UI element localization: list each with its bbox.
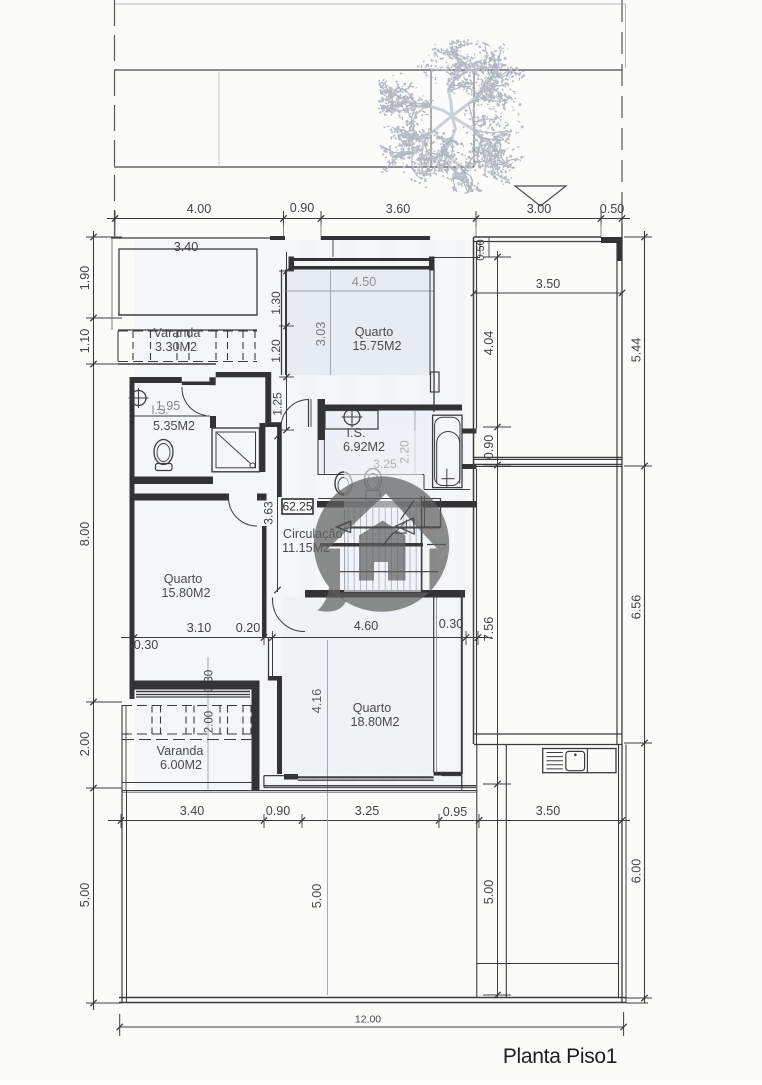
svg-text:Quarto: Quarto: [353, 701, 392, 715]
svg-text:0.20: 0.20: [236, 621, 261, 635]
svg-text:Quarto: Quarto: [164, 572, 203, 586]
svg-text:2.00: 2.00: [204, 711, 216, 733]
svg-text:12.00: 12.00: [355, 1014, 381, 1026]
svg-text:5.35M2: 5.35M2: [153, 419, 195, 433]
svg-text:5.00: 5.00: [310, 884, 324, 909]
svg-text:1.90: 1.90: [78, 266, 92, 291]
svg-text:15.75M2: 15.75M2: [352, 339, 401, 353]
svg-text:3.63: 3.63: [262, 501, 276, 525]
svg-text:5.00: 5.00: [78, 883, 92, 908]
svg-text:3.50: 3.50: [536, 277, 561, 291]
svg-text:2.00: 2.00: [78, 732, 92, 757]
svg-text:3.03: 3.03: [314, 322, 328, 347]
svg-text:I.S.: I.S.: [151, 405, 168, 417]
svg-text:0.95: 0.95: [443, 805, 468, 819]
svg-text:1.10: 1.10: [78, 329, 92, 354]
svg-text:6.92M2: 6.92M2: [343, 440, 385, 454]
svg-text:I.S.: I.S.: [347, 426, 366, 440]
svg-text:6.56: 6.56: [630, 595, 644, 620]
svg-text:0.30: 0.30: [134, 638, 159, 652]
svg-text:4.16: 4.16: [310, 689, 324, 714]
svg-text:Varanda: Varanda: [157, 744, 204, 758]
svg-text:3.40: 3.40: [174, 240, 199, 254]
svg-text:0.50: 0.50: [600, 202, 625, 216]
svg-text:Quarto: Quarto: [355, 325, 394, 339]
svg-text:4.60: 4.60: [354, 619, 379, 633]
svg-text:3.00: 3.00: [527, 202, 552, 216]
svg-text:15.80M2: 15.80M2: [161, 586, 210, 600]
svg-text:3.40: 3.40: [180, 804, 205, 818]
svg-text:6.00M2: 6.00M2: [160, 758, 202, 772]
svg-text:3.50: 3.50: [536, 804, 561, 818]
svg-text:3.10: 3.10: [187, 621, 212, 635]
svg-text:3.25: 3.25: [355, 804, 380, 818]
svg-text:5.44: 5.44: [630, 338, 644, 363]
svg-text:Varanda: Varanda: [154, 326, 201, 340]
svg-text:5.00: 5.00: [482, 880, 496, 905]
svg-text:4.50: 4.50: [352, 275, 377, 289]
svg-text:Planta Piso1: Planta Piso1: [503, 1045, 617, 1068]
svg-text:4.00: 4.00: [187, 202, 212, 216]
svg-text:18.80M2: 18.80M2: [350, 715, 399, 729]
svg-text:62.25: 62.25: [282, 500, 312, 514]
svg-text:0.90: 0.90: [266, 804, 291, 818]
svg-text:4.04: 4.04: [482, 331, 496, 356]
svg-text:0.30: 0.30: [439, 617, 464, 631]
svg-text:3.60: 3.60: [386, 202, 411, 216]
svg-text:3.30M2: 3.30M2: [155, 340, 197, 354]
svg-text:0.90: 0.90: [482, 435, 496, 460]
svg-text:1.25: 1.25: [271, 392, 285, 416]
svg-text:8.00: 8.00: [78, 522, 92, 547]
svg-text:6.00: 6.00: [630, 859, 644, 884]
svg-text:0.90: 0.90: [290, 201, 315, 215]
